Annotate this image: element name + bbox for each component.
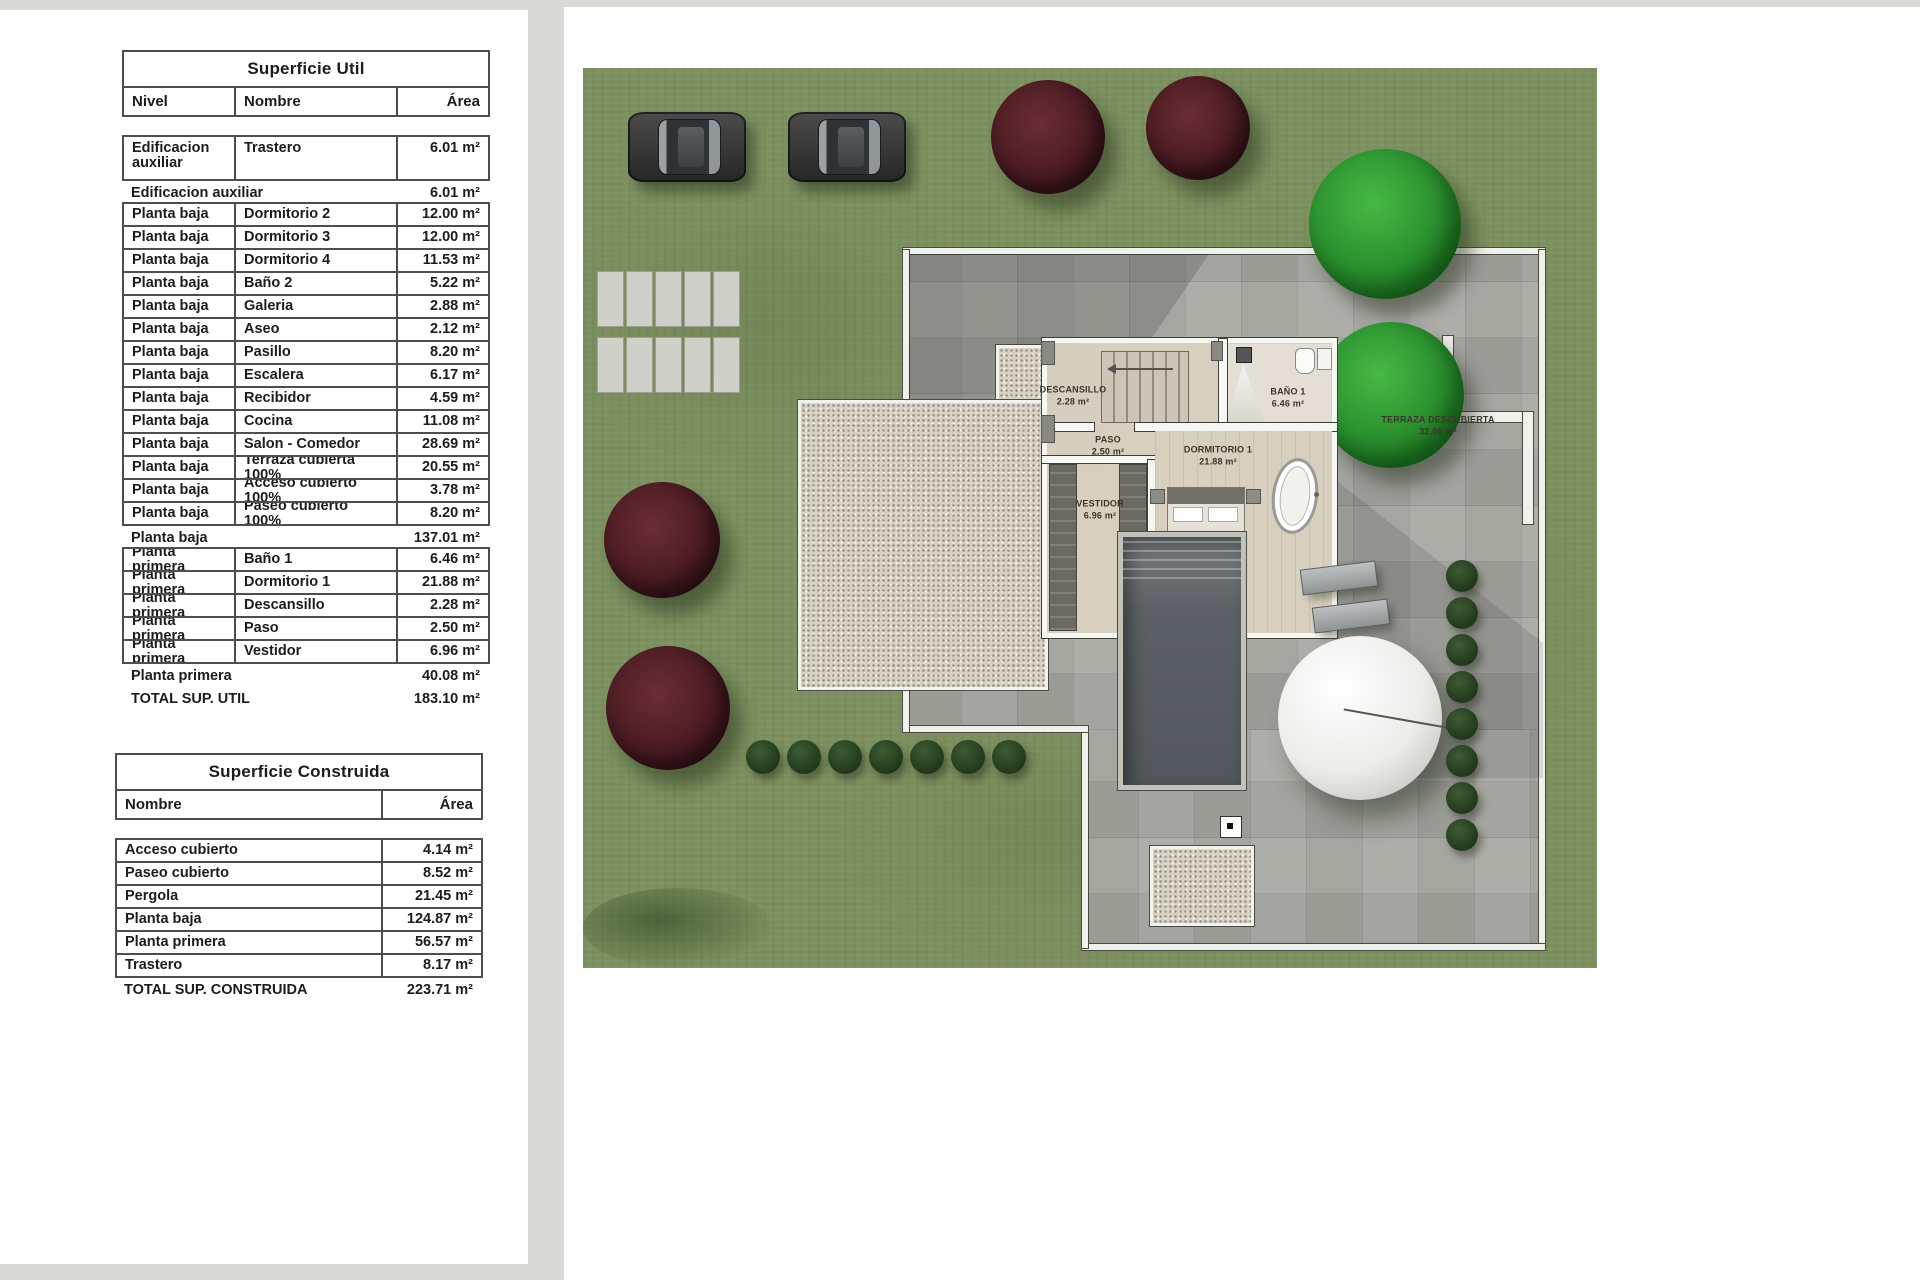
label-vestidor: VESTIDOR 6.96 m² [1076, 498, 1124, 521]
table-row: Planta primeraDescansillo2.28 m² [122, 593, 490, 618]
table-total-row: TOTAL SUP. CONSTRUIDA223.71 m² [115, 978, 483, 1001]
row-area: 6.01 m² [430, 185, 480, 201]
swimming-pool [1118, 532, 1246, 790]
table-row: Planta primeraVestidor6.96 m² [122, 639, 490, 664]
bush [787, 740, 821, 774]
corner-vegetation [583, 888, 773, 968]
cell-area: 2.50 m² [398, 618, 488, 639]
wall-partition [1135, 423, 1337, 431]
cell-area: 3.78 m² [398, 480, 488, 501]
toilet [1295, 348, 1315, 374]
cell-nivel: Planta primera [124, 618, 236, 639]
wardrobe-left [1050, 465, 1076, 630]
cell-area: 56.57 m² [383, 932, 481, 953]
table-row: Planta bajaAcceso cubierto 100%3.78 m² [122, 478, 490, 503]
slab [627, 338, 652, 392]
scan-edge-divider [528, 0, 564, 1280]
cell-nombre: Baño 2 [236, 273, 398, 294]
label-dormitorio1: DORMITORIO 1 21.88 m² [1184, 444, 1252, 467]
bush [1446, 745, 1478, 777]
cell-nivel: Planta baja [124, 411, 236, 432]
cell-nivel: Planta baja [124, 480, 236, 501]
cell-nivel: Planta primera [124, 549, 236, 570]
bush [1446, 819, 1478, 851]
cell-area: 6.01 m² [398, 137, 488, 179]
stepping-slab-grid [598, 272, 742, 394]
cell-nivel: Edificacion auxiliar [124, 137, 236, 179]
column-header-nombre: Nombre [236, 88, 398, 115]
bush [1446, 782, 1478, 814]
cell-nombre: Aseo [236, 319, 398, 340]
bush [828, 740, 862, 774]
table-row: Planta bajaDormitorio 411.53 m² [122, 248, 490, 273]
cell-area: 6.96 m² [398, 641, 488, 662]
cell-nivel: Planta baja [124, 434, 236, 455]
cell-nombre: Acceso cubierto [117, 840, 383, 861]
table-gap [115, 820, 483, 840]
table-subtotal-row: Edificacion auxiliar6.01 m² [122, 181, 490, 204]
tree-dark-red-1 [991, 80, 1105, 194]
cell-nombre: Galeria [236, 296, 398, 317]
bush [910, 740, 944, 774]
table-row: Planta primera56.57 m² [115, 930, 483, 955]
row-area: 223.71 m² [407, 982, 473, 998]
room-name: PASO [1095, 434, 1121, 444]
cell-nivel: Planta baja [124, 296, 236, 317]
tree-green-1 [1309, 149, 1461, 299]
cell-nivel: Planta baja [124, 503, 236, 524]
table-row: Planta bajaSalon - Comedor28.69 m² [122, 432, 490, 457]
room-area: 2.50 m² [1092, 446, 1124, 456]
column-header-row: Nombre Área [117, 791, 481, 818]
cell-area: 11.53 m² [398, 250, 488, 271]
cell-nombre: Dormitorio 1 [236, 572, 398, 593]
table-row: Planta bajaAseo2.12 m² [122, 317, 490, 342]
cell-nombre: Descansillo [236, 595, 398, 616]
stair-direction-arrow [1111, 368, 1173, 370]
cell-nivel: Planta baja [124, 227, 236, 248]
bush [869, 740, 903, 774]
room-name: DORMITORIO 1 [1184, 444, 1252, 454]
scan-edge-bottom [0, 1264, 530, 1280]
tree-dark-red-3 [604, 482, 720, 598]
cell-area: 28.69 m² [398, 434, 488, 455]
sphere-sculpture [1278, 636, 1442, 800]
room-area: 32.00 m² [1419, 426, 1457, 436]
cell-area: 8.20 m² [398, 503, 488, 524]
cell-area: 8.52 m² [383, 863, 481, 884]
cell-nombre: Dormitorio 3 [236, 227, 398, 248]
cell-area: 8.17 m² [383, 955, 481, 976]
cell-nombre: Trastero [117, 955, 383, 976]
table-gap [122, 117, 490, 137]
tree-dark-red-4 [606, 646, 730, 770]
cell-nivel: Planta baja [124, 388, 236, 409]
column-header-area: Área [398, 88, 488, 115]
cell-nombre: Dormitorio 4 [236, 250, 398, 271]
tree-dark-red-2 [1146, 76, 1250, 180]
cell-nivel: Planta baja [124, 342, 236, 363]
cell-nombre: Pasillo [236, 342, 398, 363]
room-name: TERRAZA DESCUBIERTA [1381, 414, 1494, 424]
cell-nivel: Planta primera [124, 595, 236, 616]
sink [1317, 348, 1332, 370]
pool-steps [1123, 537, 1241, 579]
cell-area: 5.22 m² [398, 273, 488, 294]
slab [685, 272, 710, 326]
table-row: Trastero8.17 m² [115, 953, 483, 978]
table-row: Planta primeraDormitorio 121.88 m² [122, 570, 490, 595]
cell-nivel: Planta baja [124, 319, 236, 340]
table-row: Paseo cubierto8.52 m² [115, 861, 483, 886]
column-header-row: Nivel Nombre Área [124, 88, 488, 115]
cell-nombre: Vestidor [236, 641, 398, 662]
table-row: Planta bajaGaleria2.88 m² [122, 294, 490, 319]
row-area: 183.10 m² [414, 691, 480, 707]
cell-nombre: Pergola [117, 886, 383, 907]
room-name: DESCANSILLO [1040, 384, 1107, 394]
bathtub-faucet [1314, 492, 1319, 497]
table-row: Planta bajaBaño 25.22 m² [122, 271, 490, 296]
table-header: Superficie Construida Nombre Área [115, 753, 483, 820]
cell-area: 2.28 m² [398, 595, 488, 616]
pergola-gravel-roof [798, 400, 1048, 690]
car-roof [678, 127, 704, 166]
row-label: Planta baja [131, 530, 208, 546]
row-area: 40.08 m² [422, 668, 480, 684]
cell-area: 12.00 m² [398, 204, 488, 225]
site-plan: DESCANSILLO 2.28 m² PASO 2.50 m² BAÑO 1 … [583, 68, 1597, 968]
cell-nombre: Paseo cubierto [117, 863, 383, 884]
cell-nombre: Escalera [236, 365, 398, 386]
label-banyo1: BAÑO 1 6.46 m² [1270, 386, 1305, 409]
table-row: Planta primeraPaso2.50 m² [122, 616, 490, 641]
scan-edge-top [0, 0, 530, 10]
utility-box [1220, 816, 1242, 838]
table-row: Planta primeraBaño 16.46 m² [122, 547, 490, 572]
cell-nivel: Planta primera [124, 641, 236, 662]
bush [1446, 560, 1478, 592]
slab [714, 272, 739, 326]
nightstand-right [1247, 490, 1260, 503]
car-2 [788, 112, 906, 182]
cell-nombre: Terraza cubierta 100% [236, 457, 398, 478]
slab [714, 338, 739, 392]
row-label: TOTAL SUP. UTIL [131, 691, 250, 707]
slab [627, 272, 652, 326]
slab [656, 272, 681, 326]
table-body: Edificacion auxiliarTrastero6.01 m²Edifi… [122, 135, 490, 710]
cell-nombre: Acceso cubierto 100% [236, 480, 398, 501]
label-terraza-descubierta: TERRAZA DESCUBIERTA 32.00 m² [1381, 414, 1494, 437]
table-row: Planta bajaDormitorio 312.00 m² [122, 225, 490, 250]
wall-pillar [1042, 416, 1054, 442]
table-header: Superficie Util Nivel Nombre Área [122, 50, 490, 117]
cell-area: 20.55 m² [398, 457, 488, 478]
paving-wall-bottom [1082, 944, 1545, 950]
cell-nombre: Cocina [236, 411, 398, 432]
column-header-nombre: Nombre [117, 791, 383, 818]
table-subtotal-row: Planta primera40.08 m² [122, 664, 490, 687]
wall-pillar [1042, 342, 1054, 364]
row-label: Planta primera [131, 668, 232, 684]
pillow [1174, 508, 1202, 521]
nightstand-left [1151, 490, 1164, 503]
room-name: BAÑO 1 [1270, 386, 1305, 396]
table-row: Planta bajaEscalera6.17 m² [122, 363, 490, 388]
room-area: 6.96 m² [1084, 510, 1116, 520]
cell-area: 21.45 m² [383, 886, 481, 907]
cell-area: 2.12 m² [398, 319, 488, 340]
cell-nombre: Salon - Comedor [236, 434, 398, 455]
cell-nivel: Planta baja [124, 250, 236, 271]
table-row: Planta bajaDormitorio 212.00 m² [122, 202, 490, 227]
superficie-util-table: Superficie Util Nivel Nombre Área Edific… [122, 50, 490, 710]
utility-box-dot [1227, 823, 1233, 829]
table-row: Planta bajaCocina11.08 m² [122, 409, 490, 434]
table-row: Planta baja124.87 m² [115, 907, 483, 932]
cell-area: 4.59 m² [398, 388, 488, 409]
table-row: Planta bajaPaseo cubierto 100%8.20 m² [122, 501, 490, 526]
table-row: Pergola21.45 m² [115, 884, 483, 909]
cell-area: 6.17 m² [398, 365, 488, 386]
cell-nivel: Planta baja [124, 365, 236, 386]
cell-nivel: Planta primera [124, 572, 236, 593]
pillow [1209, 508, 1237, 521]
table-row: Planta bajaTerraza cubierta 100%20.55 m² [122, 455, 490, 480]
cell-area: 4.14 m² [383, 840, 481, 861]
table-row: Acceso cubierto4.14 m² [115, 838, 483, 863]
label-descansillo: DESCANSILLO 2.28 m² [1040, 384, 1107, 407]
bush [992, 740, 1026, 774]
cell-area: 12.00 m² [398, 227, 488, 248]
slab [598, 338, 623, 392]
room-name: VESTIDOR [1076, 498, 1124, 508]
cell-area: 21.88 m² [398, 572, 488, 593]
cell-area: 2.88 m² [398, 296, 488, 317]
row-label: Edificacion auxiliar [131, 185, 263, 201]
room-area: 21.88 m² [1199, 456, 1237, 466]
cell-nombre: Paseo cubierto 100% [236, 503, 398, 524]
slab [656, 338, 681, 392]
cell-nombre: Planta primera [117, 932, 383, 953]
cell-nombre: Recibidor [236, 388, 398, 409]
table-title: Superficie Construida [117, 755, 481, 791]
cell-nombre: Trastero [236, 137, 398, 179]
cell-nivel: Planta baja [124, 273, 236, 294]
bush [1446, 671, 1478, 703]
cell-area: 6.46 m² [398, 549, 488, 570]
bush [1446, 634, 1478, 666]
parapet-wall-v2 [1523, 412, 1533, 524]
table-row: Planta bajaRecibidor4.59 m² [122, 386, 490, 411]
table-body: Acceso cubierto4.14 m²Paseo cubierto8.52… [115, 838, 483, 1001]
paving-wall-notch-v [1082, 730, 1088, 948]
car-roof [838, 127, 864, 166]
slab [685, 338, 710, 392]
headboard [1168, 488, 1244, 504]
cell-nivel: Planta baja [124, 204, 236, 225]
paving-wall-right [1539, 250, 1545, 950]
wall-pillar [1212, 342, 1222, 360]
cell-area: 11.08 m² [398, 411, 488, 432]
cell-nombre: Baño 1 [236, 549, 398, 570]
row-label: TOTAL SUP. CONSTRUIDA [124, 982, 307, 998]
table-row: Planta bajaPasillo8.20 m² [122, 340, 490, 365]
cell-area: 124.87 m² [383, 909, 481, 930]
cell-nivel: Planta baja [124, 457, 236, 478]
bush [951, 740, 985, 774]
page-root: { "superficie_util": { "title": "Superfi… [0, 0, 1920, 1280]
cell-nombre: Planta baja [117, 909, 383, 930]
cell-nombre: Dormitorio 2 [236, 204, 398, 225]
shower-head [1237, 348, 1251, 362]
slab [598, 272, 623, 326]
table-row: Edificacion auxiliarTrastero6.01 m² [122, 135, 490, 181]
bush [1446, 597, 1478, 629]
room-area: 6.46 m² [1272, 398, 1304, 408]
paving-wall-notch-h [905, 726, 1088, 732]
staircase [1102, 352, 1188, 422]
cell-nombre: Paso [236, 618, 398, 639]
superficie-construida-table: Superficie Construida Nombre Área Acceso… [115, 753, 483, 1001]
cell-area: 8.20 m² [398, 342, 488, 363]
bush [746, 740, 780, 774]
column-header-area: Área [383, 791, 481, 818]
bush [1446, 708, 1478, 740]
scan-edge-top-right [564, 0, 1920, 7]
table-total-row: TOTAL SUP. UTIL183.10 m² [122, 687, 490, 710]
trastero-pad [1150, 846, 1254, 926]
room-area: 2.28 m² [1057, 396, 1089, 406]
table-subtotal-row: Planta baja137.01 m² [122, 526, 490, 549]
column-header-nivel: Nivel [124, 88, 236, 115]
stair-arrow-head [1107, 364, 1116, 374]
car-1 [628, 112, 746, 182]
tree-green-2 [1318, 322, 1464, 468]
label-paso: PASO 2.50 m² [1092, 434, 1124, 457]
table-title: Superficie Util [124, 52, 488, 88]
row-area: 137.01 m² [414, 530, 480, 546]
